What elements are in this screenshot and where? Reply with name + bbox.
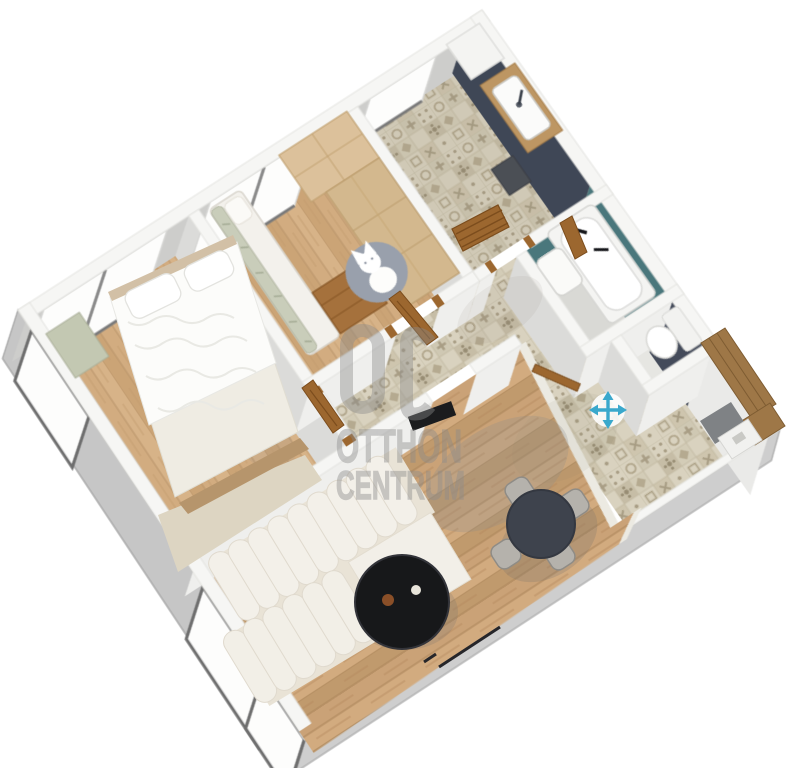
svg-text:CENTRUM: CENTRUM <box>336 464 465 508</box>
